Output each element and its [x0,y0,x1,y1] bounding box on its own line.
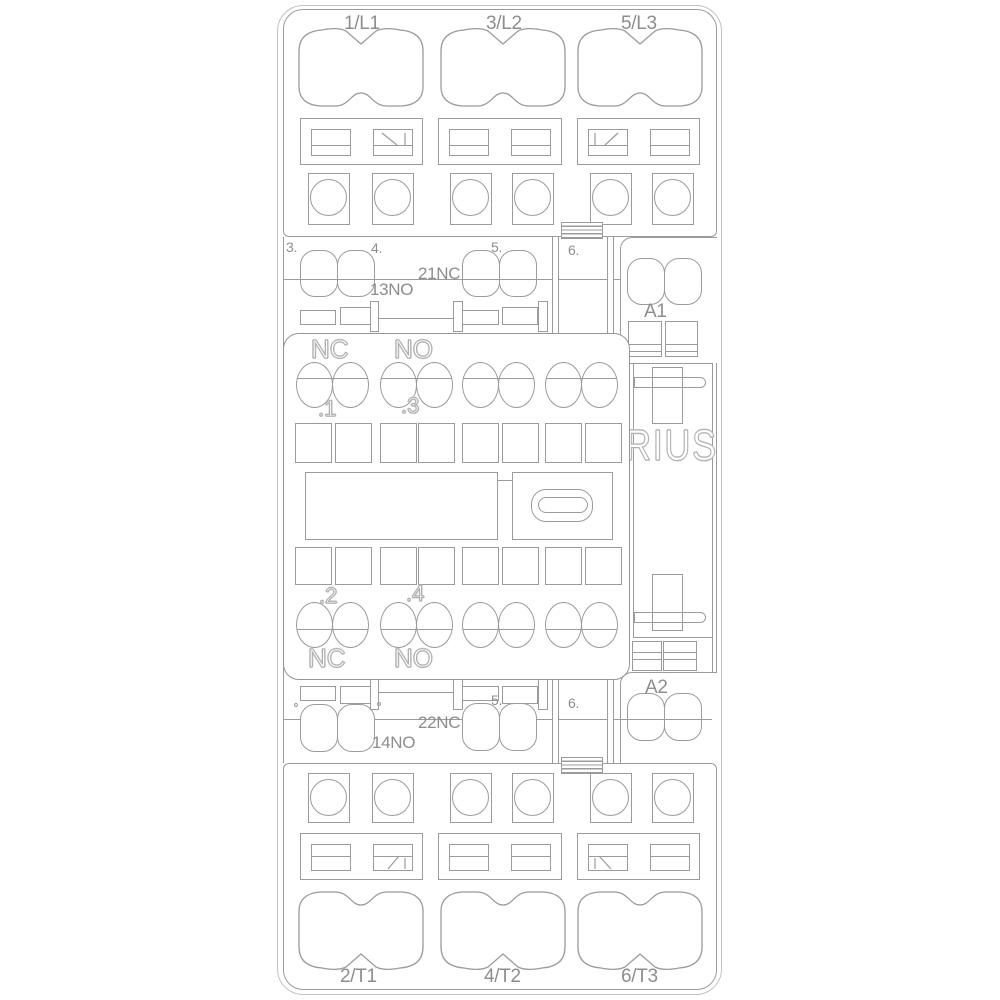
release-slot [373,129,413,156]
aux-position-label: 5. [491,692,502,708]
slot-line [450,145,488,146]
aux-terminal [462,250,500,297]
panel-point-label: .1 [318,396,336,422]
aux-terminal [462,703,500,751]
terminal-label: 5/L3 [621,13,657,35]
terminal-label: 6/T3 [621,966,658,988]
slot-line [633,659,661,660]
aux-no-label: 13NO [370,280,413,300]
panel-square-port [380,423,417,463]
din-clip [561,222,603,239]
slot-line [512,856,550,857]
panel-no-label-bottom: NO [394,643,433,674]
clamp-point [581,602,618,648]
screw-terminal [652,173,694,225]
panel-no-label-top: NO [394,334,433,365]
terminal-label: 3/L2 [486,13,522,35]
clamp-chord-line [546,629,617,630]
panel-square-port [418,423,455,463]
cable-opening [440,889,567,972]
center-rail [607,237,614,333]
screw-terminal [308,773,350,823]
aux-position-label: 5. [491,239,502,255]
slot-line [666,351,697,352]
release-slot [588,129,628,156]
clamp-slot-group [300,118,423,165]
aux-terminal [337,704,375,752]
release-slot [650,844,690,871]
center-rail [552,680,559,763]
screw-terminal [590,173,632,225]
channel-bottom-line [633,637,712,638]
clamp-chord-line [463,378,534,379]
aux-no-label: 14NO [372,733,415,753]
slot-line [666,344,697,345]
panel-square-port [502,423,539,463]
panel-square-port [418,547,455,585]
slot-line [651,856,689,857]
aux-nc-label: 21NC [418,264,460,284]
lever-mark [374,130,414,157]
clamp-point [545,362,582,408]
release-slot [511,844,551,871]
clamp-point-pair [380,602,453,648]
panel-square-port [585,423,622,463]
screw-head [592,779,629,816]
mount-tab [340,686,371,704]
panel-square-port [295,423,332,463]
mount-tab [502,307,538,325]
clamp-point [462,602,499,648]
screw-terminal [652,773,694,823]
slot-line [512,145,550,146]
slot-line [664,652,696,653]
clamp-point-pair [462,362,535,408]
screw-terminal [512,173,554,225]
aux-terminal [499,703,537,751]
clamp-chord-line [297,629,368,630]
panel-square-port [502,547,539,585]
center-rail [552,237,559,333]
panel-point-label: .2 [319,583,337,609]
clamp-point-pair [545,602,618,648]
release-slot [373,844,413,871]
screw-terminal [450,773,492,823]
din-clip [561,757,603,774]
slot-line [651,145,689,146]
clamp-point [581,362,618,408]
screw-terminal [512,773,554,823]
center-rail [607,680,614,763]
aux-terminal [300,250,338,297]
release-slot [449,844,489,871]
aux-nc-label: 22NC [418,713,460,733]
lever-mark [589,130,629,157]
panel-point-label: .4 [406,581,424,607]
aux-terminal [300,704,338,752]
clamp-point [498,602,535,648]
contactor-line-drawing: 1/L1 3/L2 5/L3 3. 4. 5. 6. 21NC 13NO [0,0,1000,1000]
screw-head [654,779,691,816]
clamp-slot-group [577,118,700,165]
latch-block [652,367,683,424]
clamp-point [498,362,535,408]
coil-terminal [664,693,702,741]
position-dot [294,703,298,707]
mount-tab [300,686,336,701]
cable-opening [577,889,704,972]
aux-position-label: 6. [568,695,579,711]
cable-opening [440,27,567,110]
slot-line [633,652,661,653]
clamp-point [462,362,499,408]
panel-nc-label-top: NC [311,334,349,365]
screw-terminal [372,173,414,225]
release-slot [311,129,351,156]
release-slot [311,844,351,871]
clamp-point [332,362,369,408]
screw-terminal [450,173,492,225]
clamp-chord-line [463,629,534,630]
clamp-point-pair [462,602,535,648]
coil-terminal [627,693,665,741]
mount-tab [462,310,499,325]
coil-terminal [627,258,665,305]
slot-line [450,856,488,857]
mount-post [538,301,548,332]
clamp-chord-line [381,629,452,630]
panel-square-port [545,423,582,463]
cable-opening [577,27,704,110]
clamp-point [545,602,582,648]
coil-terminal [664,258,702,305]
tab-link-line [379,692,454,693]
coil-label: A1 [644,301,667,323]
clamp-slot-group [577,833,700,880]
clamp-point [332,602,369,648]
screw-terminal [590,773,632,823]
screw-head [514,779,551,816]
position-dot [377,702,381,706]
cable-opening [298,889,425,972]
slot-line [629,351,661,352]
terminal-label: 2/T1 [340,966,377,988]
label-window [305,472,498,540]
clamp-point-pair [545,362,618,408]
aux-position-label: 4. [371,240,382,256]
panel-square-port [335,423,372,463]
screw-head [452,779,489,816]
coil-clamp-slot [632,641,662,671]
clamp-chord-line [546,378,617,379]
connector-line [498,480,512,481]
release-slot [511,129,551,156]
panel-square-port [545,547,582,585]
cable-opening [298,27,425,110]
latch-pin [634,377,706,388]
clamp-chord-line [381,378,452,379]
latch-pin [634,612,706,623]
slot-line [312,856,350,857]
slot-line [312,145,350,146]
panel-square-port [462,423,499,463]
mount-tab [340,307,371,325]
panel-square-port [380,547,417,585]
lever-mark [589,845,629,872]
screw-head [310,179,347,216]
screw-head [452,179,489,216]
coil-clamp-slot [628,321,662,357]
panel-square-port [462,547,499,585]
release-slot [650,129,690,156]
screw-terminal [308,173,350,225]
release-slot [588,844,628,871]
mount-post [538,679,548,710]
coil-clamp-slot [665,321,698,357]
slot-line [629,344,661,345]
clamp-slot-group [438,833,562,880]
panel-square-port [295,547,332,585]
screw-head [592,179,629,216]
test-button-pad [538,497,588,513]
screw-head [654,179,691,216]
screw-terminal [372,773,414,823]
slot-line [664,659,696,660]
aux-terminal [499,250,537,297]
clamp-point [416,602,453,648]
screw-head [514,179,551,216]
release-slot [449,129,489,156]
terminal-label: 1/L1 [344,13,380,35]
panel-square-port [585,547,622,585]
clamp-slot-group [300,833,423,880]
clamp-point [380,602,417,648]
aux-position-label: 6. [568,242,579,258]
panel-square-port [335,547,372,585]
mount-tab [300,310,336,325]
screw-head [374,179,411,216]
channel-wall [633,363,634,637]
coil-label: A2 [645,677,668,699]
screw-head [310,779,347,816]
lever-mark [374,845,414,872]
panel-nc-label-bottom: NC [308,643,346,674]
sirius-brand-text: RIUS [625,421,718,471]
clamp-chord-line [297,378,368,379]
clamp-slot-group [438,118,562,165]
mount-post [502,686,538,704]
coil-clamp-slot [663,641,697,671]
clamp-point [416,362,453,408]
tab-link-line [379,318,454,319]
aux-position-label: 3. [286,239,297,255]
screw-head [374,779,411,816]
mount-post [370,301,379,332]
terminal-label: 4/T2 [484,966,521,988]
panel-point-label: .3 [401,393,419,419]
